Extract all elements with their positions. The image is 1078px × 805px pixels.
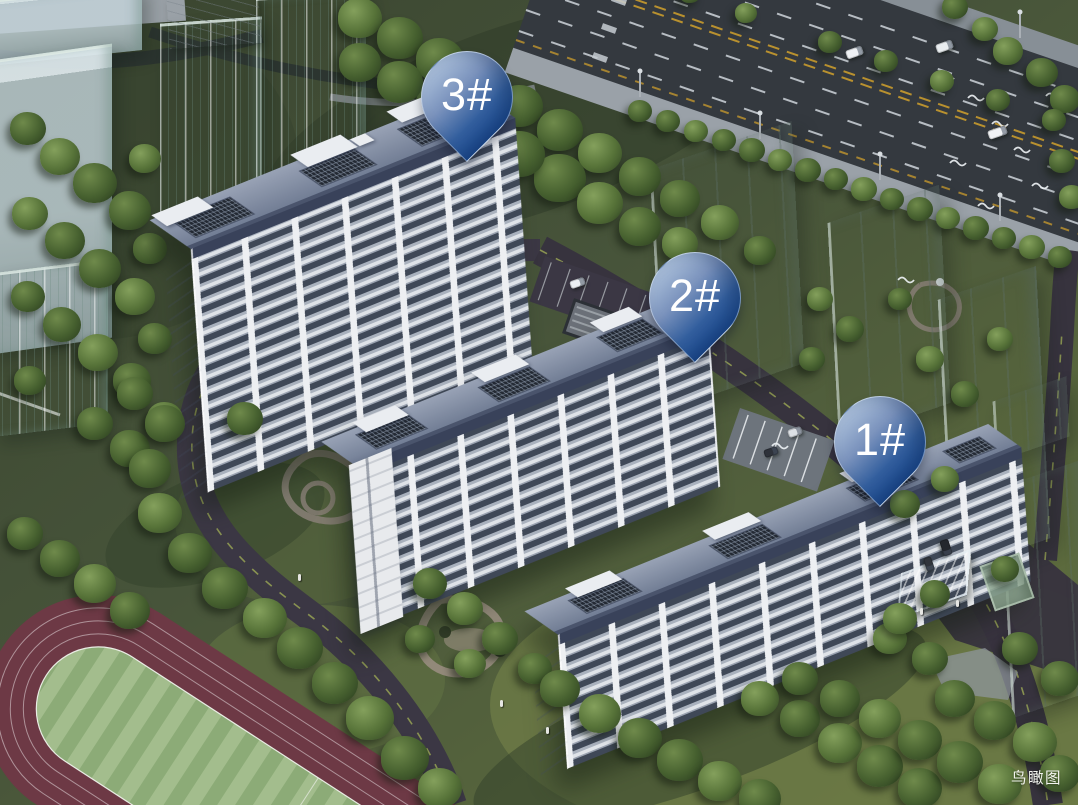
tree [1048, 246, 1072, 268]
tree [935, 680, 975, 717]
tree [992, 227, 1016, 249]
tree [993, 37, 1023, 65]
tree [1041, 661, 1078, 696]
tree [619, 207, 661, 246]
tree [447, 592, 483, 625]
tree [739, 138, 765, 162]
tree [133, 233, 167, 264]
tree [277, 627, 323, 669]
tree [618, 718, 662, 758]
tree [820, 680, 860, 717]
tree [1059, 185, 1078, 209]
tree [109, 191, 151, 230]
tree [963, 216, 989, 240]
tree [381, 736, 429, 780]
tree [43, 307, 81, 342]
tree [578, 133, 622, 173]
tree [818, 31, 842, 53]
person [546, 727, 549, 734]
tree [115, 278, 155, 315]
tree [920, 580, 950, 608]
tree [880, 188, 904, 210]
tree [129, 144, 161, 173]
tree [579, 694, 621, 733]
tree [339, 43, 381, 82]
tree [1019, 235, 1045, 259]
tree [577, 182, 623, 224]
tree [145, 405, 185, 442]
person [956, 600, 959, 607]
tree [14, 366, 46, 395]
tree [40, 138, 80, 175]
tree [7, 517, 43, 550]
tree [986, 89, 1010, 111]
person [920, 608, 923, 615]
tree [1026, 58, 1058, 87]
tree [45, 222, 85, 259]
tree [898, 768, 942, 805]
tree [74, 564, 116, 603]
tree [537, 109, 583, 151]
tree [168, 533, 212, 573]
tree [202, 567, 248, 609]
tree [888, 288, 912, 310]
tree [418, 768, 462, 805]
tree [656, 110, 680, 132]
building-marker-2-label: 2# [650, 253, 740, 343]
tree [735, 3, 757, 23]
person [298, 574, 301, 581]
tree [890, 490, 920, 518]
tree [10, 112, 46, 145]
tree [768, 149, 792, 171]
tree [1049, 149, 1075, 173]
tree [898, 720, 942, 760]
tree [936, 207, 960, 229]
tree [836, 316, 864, 342]
tree [795, 158, 821, 182]
tree [540, 670, 580, 707]
tree [931, 466, 959, 492]
tree [780, 700, 820, 737]
tree [972, 17, 998, 41]
tree [657, 739, 703, 781]
tree [377, 61, 423, 103]
tree [874, 50, 898, 72]
tree [12, 197, 48, 230]
tree [930, 70, 954, 92]
tree [799, 347, 825, 371]
tree [79, 249, 121, 288]
tree [346, 696, 394, 740]
tree [974, 701, 1016, 740]
tree [741, 681, 779, 716]
tree [129, 449, 171, 488]
tree [987, 327, 1013, 351]
context-building-white [166, 0, 261, 49]
tree [1042, 109, 1066, 131]
tree [73, 163, 117, 203]
tree [405, 625, 435, 653]
tree [883, 603, 917, 634]
tree [851, 177, 877, 201]
tree [712, 129, 736, 151]
tree [413, 568, 447, 599]
tree [907, 197, 933, 221]
tree [243, 598, 287, 638]
tree [701, 205, 739, 240]
tree [77, 407, 113, 440]
tree [138, 493, 182, 533]
tree [951, 381, 979, 407]
tree [818, 723, 862, 763]
tree [619, 157, 661, 196]
tree [338, 0, 382, 38]
tree [628, 100, 652, 122]
tree [11, 281, 45, 312]
tree [138, 323, 172, 354]
tree [782, 662, 818, 695]
tree [807, 287, 833, 311]
tree [991, 556, 1019, 582]
tree [312, 662, 358, 704]
tree [824, 168, 848, 190]
tree [912, 642, 948, 675]
tree [937, 741, 983, 783]
tree [78, 334, 118, 371]
tree [482, 622, 518, 655]
tree [744, 236, 776, 265]
tree [660, 180, 700, 217]
aerial-site-view: 3# 2# 1# 鸟瞰图 [0, 0, 1078, 805]
tree [698, 761, 742, 801]
tree [227, 402, 263, 435]
tree [859, 699, 901, 738]
tree [110, 592, 150, 629]
building-marker-3-label: 3# [422, 52, 512, 142]
person [500, 700, 503, 707]
view-caption: 鸟瞰图 [1011, 766, 1062, 788]
tree [1002, 632, 1038, 665]
building-marker-1-label: 1# [835, 397, 925, 487]
tree [684, 120, 708, 142]
tree [117, 377, 153, 410]
tree [916, 346, 944, 372]
tree [40, 540, 80, 577]
tree [454, 649, 486, 678]
tree [857, 745, 903, 787]
